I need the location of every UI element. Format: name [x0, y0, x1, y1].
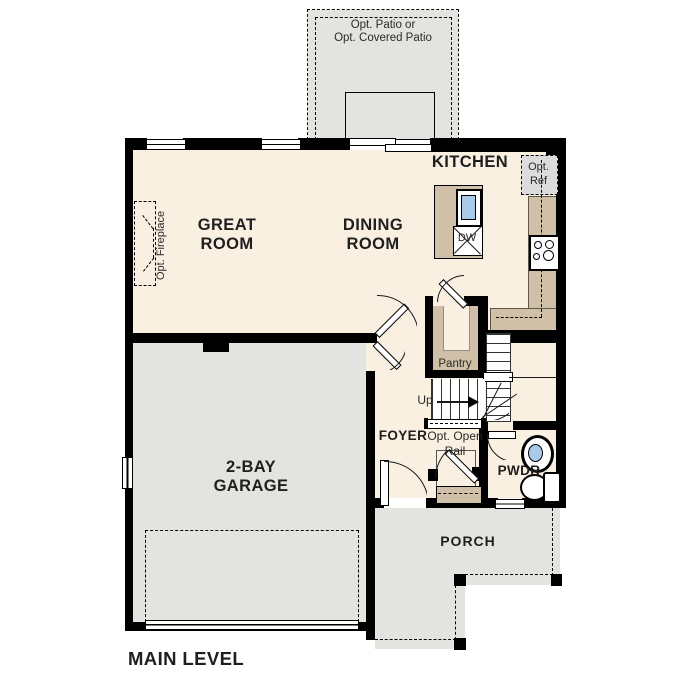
- kitchen-label: KITCHEN: [427, 153, 513, 172]
- floor-plan: Opt. Patio or Opt. Covered Patio: [0, 0, 687, 687]
- kitchen-sink-basin: [461, 195, 476, 220]
- porch-label: PORCH: [438, 533, 498, 549]
- sliding-patio-door-panel-2: [385, 144, 432, 152]
- open-rail-cap-right: [481, 418, 486, 429]
- wall-top-3: [298, 138, 350, 150]
- patio-step: [345, 92, 435, 140]
- wall-right: [556, 143, 566, 505]
- wall-pantry-stub-right: [464, 296, 488, 306]
- up-label: Up: [414, 394, 436, 408]
- wall-hall-pwdr-right: [513, 421, 566, 430]
- dishwasher-label: DW: [453, 232, 481, 245]
- garage-parking-dashed-outline: [145, 530, 359, 622]
- patio-label-line1: Opt. Patio or: [351, 19, 416, 31]
- patio-label: Opt. Patio or Opt. Covered Patio: [318, 19, 448, 45]
- powder-sink-basin: [528, 444, 543, 462]
- dining-room-label: DINING ROOM: [332, 216, 414, 254]
- wall-garage-notch: [203, 343, 229, 352]
- powder-label: PWDR: [494, 463, 544, 479]
- window-greatroom-1: [146, 139, 186, 150]
- pantry-floor: [443, 306, 470, 351]
- toilet-tank: [543, 472, 561, 503]
- porch-dashed-edge-right: [552, 508, 554, 576]
- opt-ref-line2: Ref: [530, 175, 547, 187]
- porch-dashed-edge-bottom-right: [465, 574, 553, 576]
- porch-dashed-edge-inner: [455, 585, 457, 640]
- wall-top-2: [183, 138, 262, 150]
- pantry-door-arc: [437, 275, 464, 302]
- fireplace-label: Opt. Fireplace: [155, 202, 173, 288]
- great-room-label: GREAT ROOM: [186, 216, 268, 254]
- porch-post-3: [454, 638, 466, 650]
- open-rail-line2: Rail: [445, 444, 466, 458]
- wall-left: [125, 138, 133, 631]
- up-arrow-shaft: [437, 401, 469, 403]
- pantry-label: Pantry: [431, 358, 479, 371]
- garage-door: [145, 620, 359, 630]
- window-greatroom-2: [261, 139, 301, 150]
- greatroom-door-arc: [377, 295, 417, 335]
- porch-post-4: [366, 630, 375, 640]
- opt-ref-line1: Opt.: [528, 161, 549, 173]
- patio-label-line2: Opt. Covered Patio: [334, 32, 432, 44]
- open-rail-line1: Opt. Open: [427, 429, 482, 443]
- range-burner-1: [534, 241, 542, 249]
- optional-refrigerator-label: Opt. Ref: [521, 160, 556, 188]
- level-title: MAIN LEVEL: [128, 648, 288, 669]
- foyer-label: FOYER: [376, 428, 430, 444]
- open-rail-dashed-line: [430, 423, 478, 425]
- stair-landing-line: [509, 377, 556, 378]
- range-burner-2: [545, 240, 554, 249]
- range-burner-3: [533, 253, 540, 260]
- window-garage: [122, 457, 133, 489]
- range-burner-4: [543, 250, 554, 261]
- front-door-arc: [384, 461, 427, 504]
- garage-label: 2-BAY GARAGE: [205, 458, 297, 496]
- wall-greatroom-bottom: [127, 333, 377, 343]
- porch-post-2: [551, 574, 562, 586]
- counter-dashed-centerline-h: [496, 317, 542, 319]
- garage-entry-door-arc: [375, 342, 405, 370]
- porch-post-1: [454, 574, 466, 586]
- wall-garage-right-top: [366, 333, 375, 342]
- window-porch: [495, 499, 525, 509]
- closet-shelf: [436, 486, 482, 504]
- closet-shelf-dashed-line: [438, 493, 478, 495]
- up-arrow-head: [468, 396, 479, 408]
- porch-dashed-edge-bottom-left: [375, 639, 456, 641]
